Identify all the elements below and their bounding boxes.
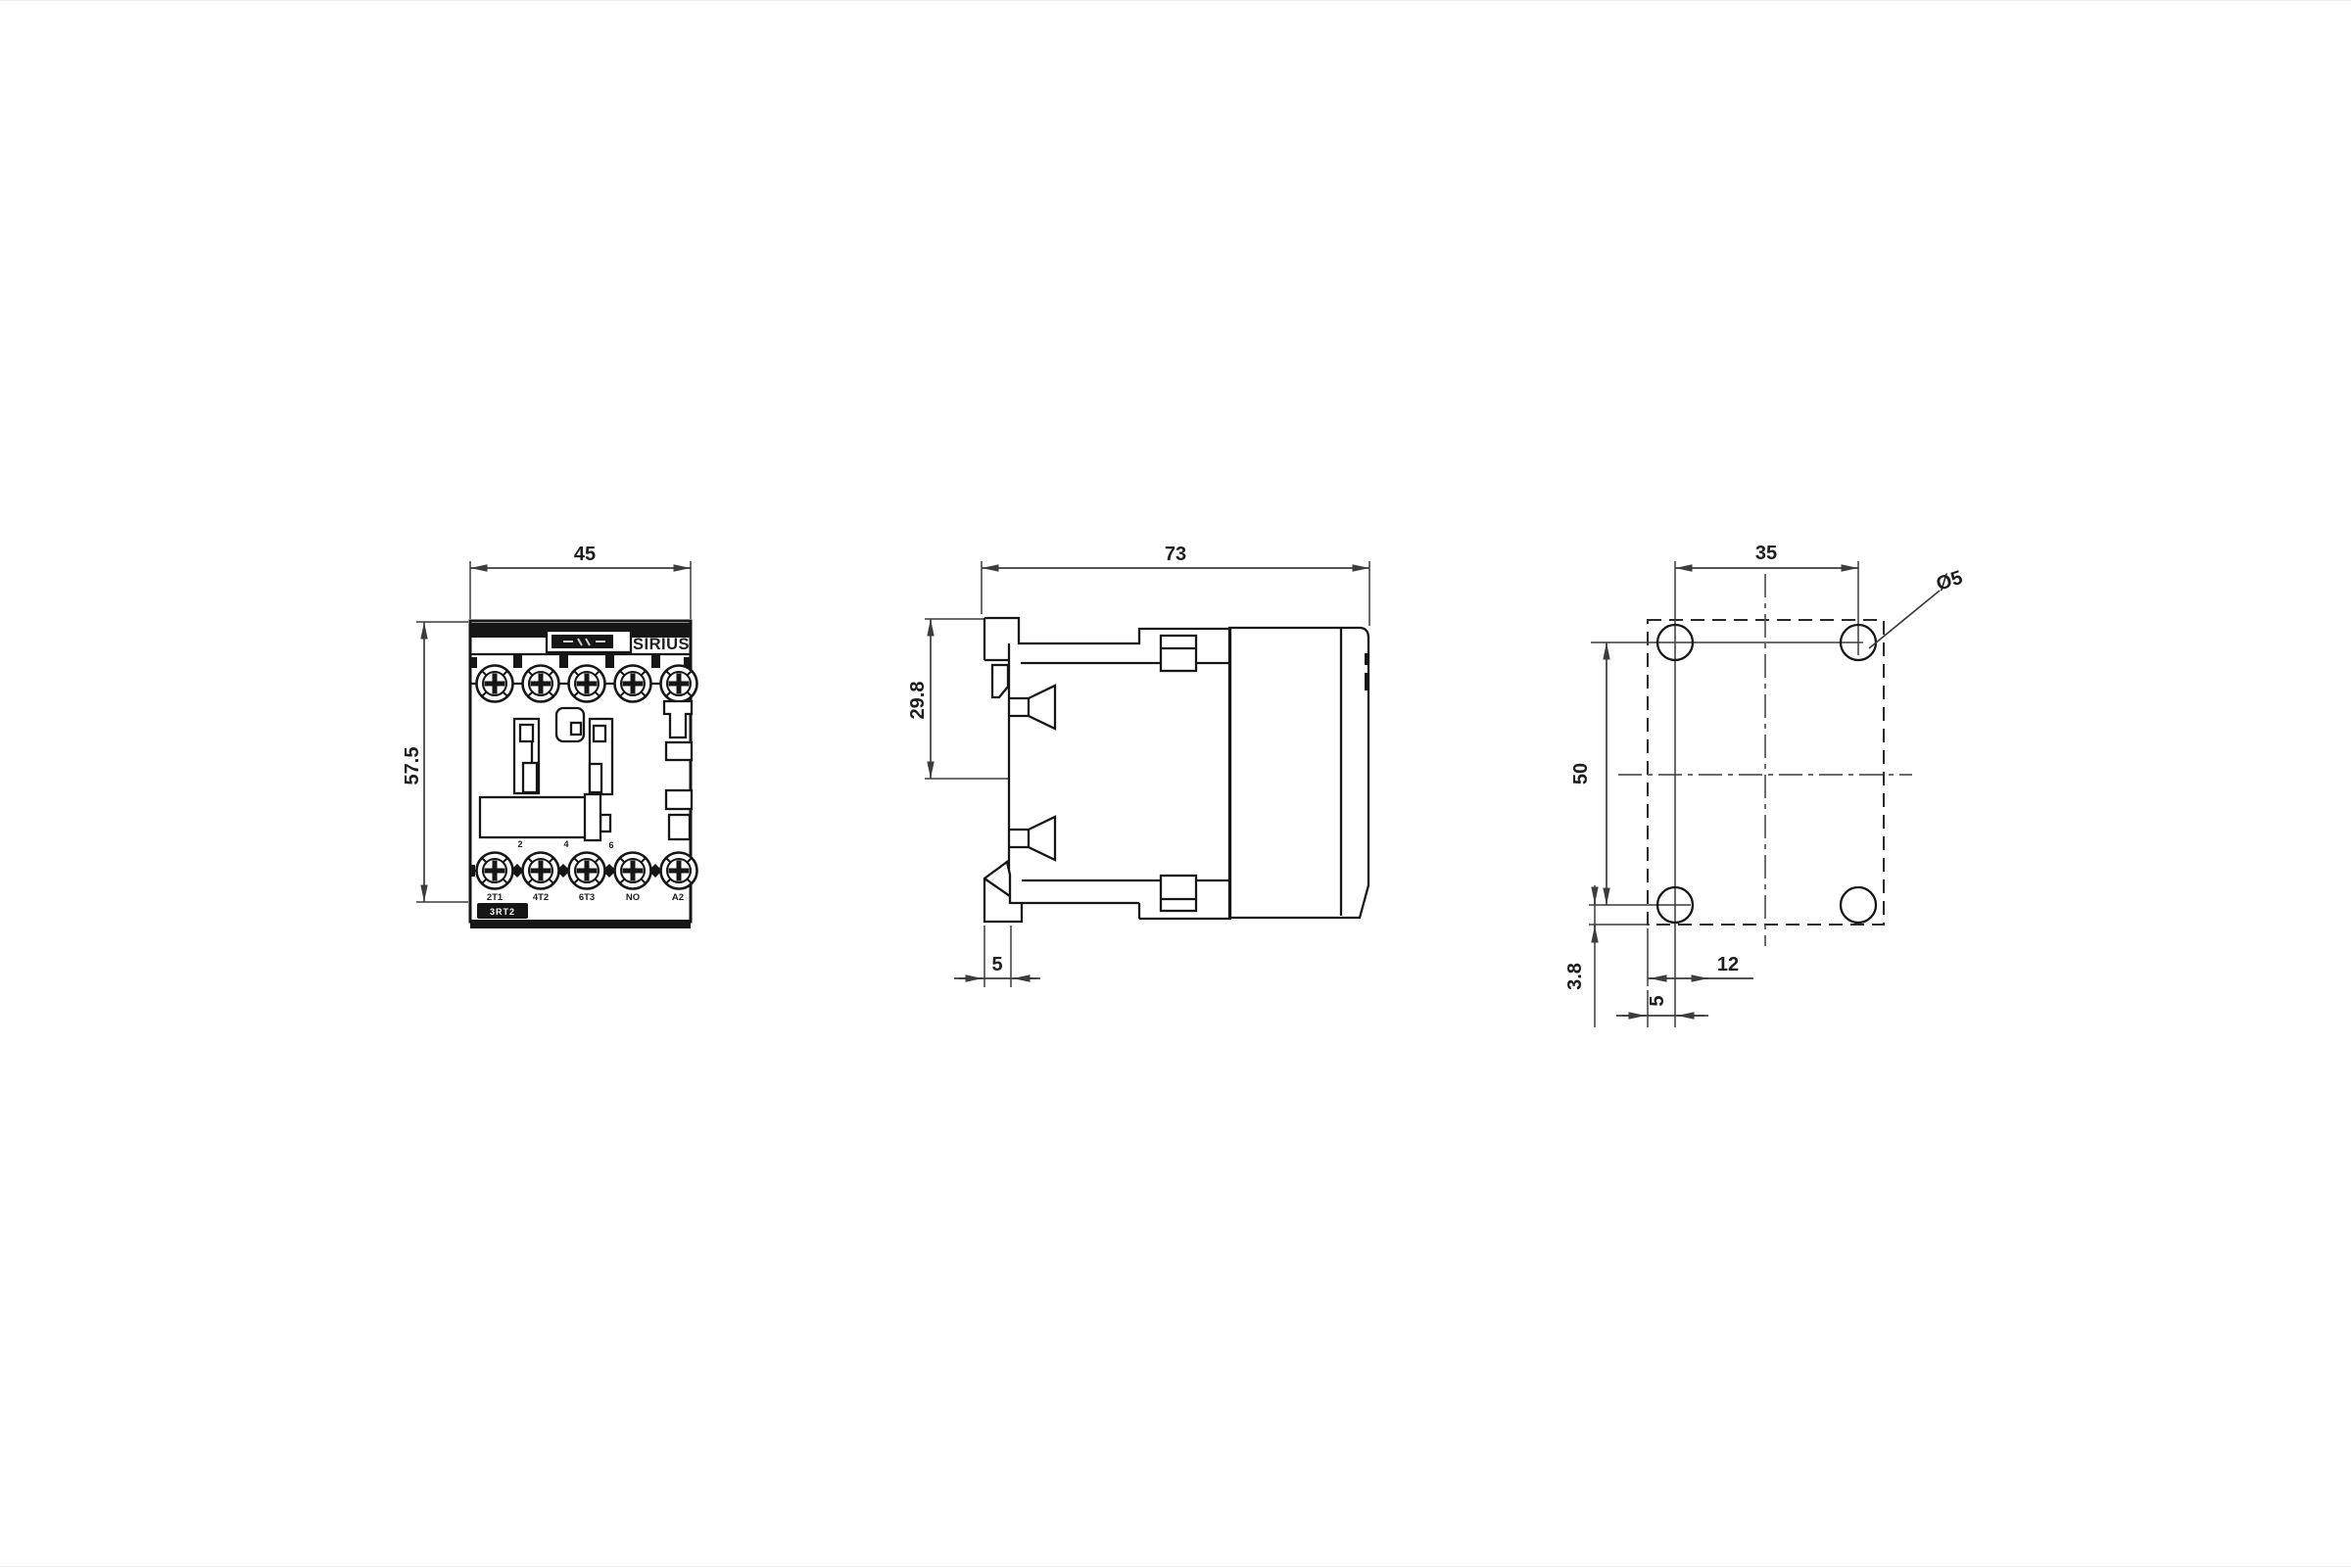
side-rail-label: 5 bbox=[991, 954, 1002, 975]
terminal-label: 6T3 bbox=[579, 892, 595, 903]
terminal-label: NO bbox=[626, 892, 640, 903]
drill-hole-offset-label: 5 bbox=[1647, 995, 1668, 1006]
terminal-number: 2 bbox=[517, 839, 522, 849]
front-bottom-terminals: 2 4 6 2T1 4T2 6T3 NO A2 bbox=[470, 839, 697, 903]
screw-terminal-icon bbox=[569, 666, 605, 702]
drill-slot-label: 12 bbox=[1717, 954, 1739, 975]
side-body bbox=[1229, 628, 1369, 918]
terminal-number: 6 bbox=[608, 840, 613, 850]
side-terminal-boxes bbox=[1161, 636, 1196, 911]
part-number-label: 3RT2 bbox=[490, 907, 515, 917]
side-depth-label: 73 bbox=[1165, 544, 1186, 565]
drill-height-dimension: 50 bbox=[1570, 642, 1607, 905]
terminal-label: 4T2 bbox=[533, 892, 549, 903]
drill-offset-label: 3.8 bbox=[1564, 963, 1586, 990]
front-height-dimension: 57.5 bbox=[402, 622, 468, 902]
side-rail-dimension: 5 bbox=[954, 926, 1040, 987]
front-width-label: 45 bbox=[574, 544, 596, 565]
front-height-label: 57.5 bbox=[402, 747, 423, 785]
side-clip-dimension: 29.8 bbox=[907, 619, 1010, 779]
terminal-label: A2 bbox=[672, 892, 684, 903]
side-view: 73 29.8 5 bbox=[907, 544, 1369, 987]
screw-terminal-icon bbox=[523, 666, 559, 702]
screw-terminal-icon bbox=[477, 666, 513, 702]
terminal-number: 4 bbox=[563, 839, 568, 849]
screw-terminal-icon bbox=[523, 853, 559, 889]
contactor-dimension-drawing: 45 57.5 SIRIUS bbox=[0, 1, 2351, 1568]
drill-height-label: 50 bbox=[1570, 763, 1592, 784]
screw-terminal-icon bbox=[661, 853, 697, 889]
front-bottom-bar bbox=[470, 920, 691, 928]
side-clip-label: 29.8 bbox=[907, 682, 929, 720]
drawing-canvas: 45 57.5 SIRIUS bbox=[0, 0, 2351, 1567]
front-top-terminals bbox=[470, 655, 697, 702]
screw-terminal-icon bbox=[477, 853, 513, 889]
drill-width-label: 35 bbox=[1755, 543, 1777, 564]
drill-offset-dimension: 3.8 bbox=[1564, 885, 1595, 1027]
screw-terminal-icon bbox=[569, 853, 605, 889]
drill-hole-offset-dimension: 5 bbox=[1616, 990, 1708, 1027]
screw-terminal-icon bbox=[661, 666, 697, 702]
mounting-hole bbox=[1841, 887, 1876, 923]
hole-diameter-label: Ø5 bbox=[1934, 567, 1965, 595]
hole-diameter-callout: Ø5 bbox=[1869, 567, 1965, 648]
drill-slot-dimension: 12 bbox=[1648, 928, 1753, 986]
part-number-badge: 3RT2 bbox=[477, 903, 528, 919]
mounting-holes bbox=[1657, 625, 1876, 923]
front-internal-parts bbox=[480, 701, 692, 840]
side-depth-dimension: 73 bbox=[982, 544, 1369, 626]
screw-terminal-icon bbox=[615, 666, 651, 702]
terminal-label: 2T1 bbox=[487, 892, 504, 903]
brand-label: SIRIUS bbox=[633, 635, 690, 653]
screw-terminal-icon bbox=[615, 853, 651, 889]
front-view: 45 57.5 SIRIUS bbox=[402, 544, 697, 928]
drilling-pattern-view: 35 50 3.8 12 5 bbox=[1564, 543, 1965, 1027]
drill-width-dimension: 35 bbox=[1675, 543, 1858, 568]
front-width-dimension: 45 bbox=[470, 544, 691, 619]
